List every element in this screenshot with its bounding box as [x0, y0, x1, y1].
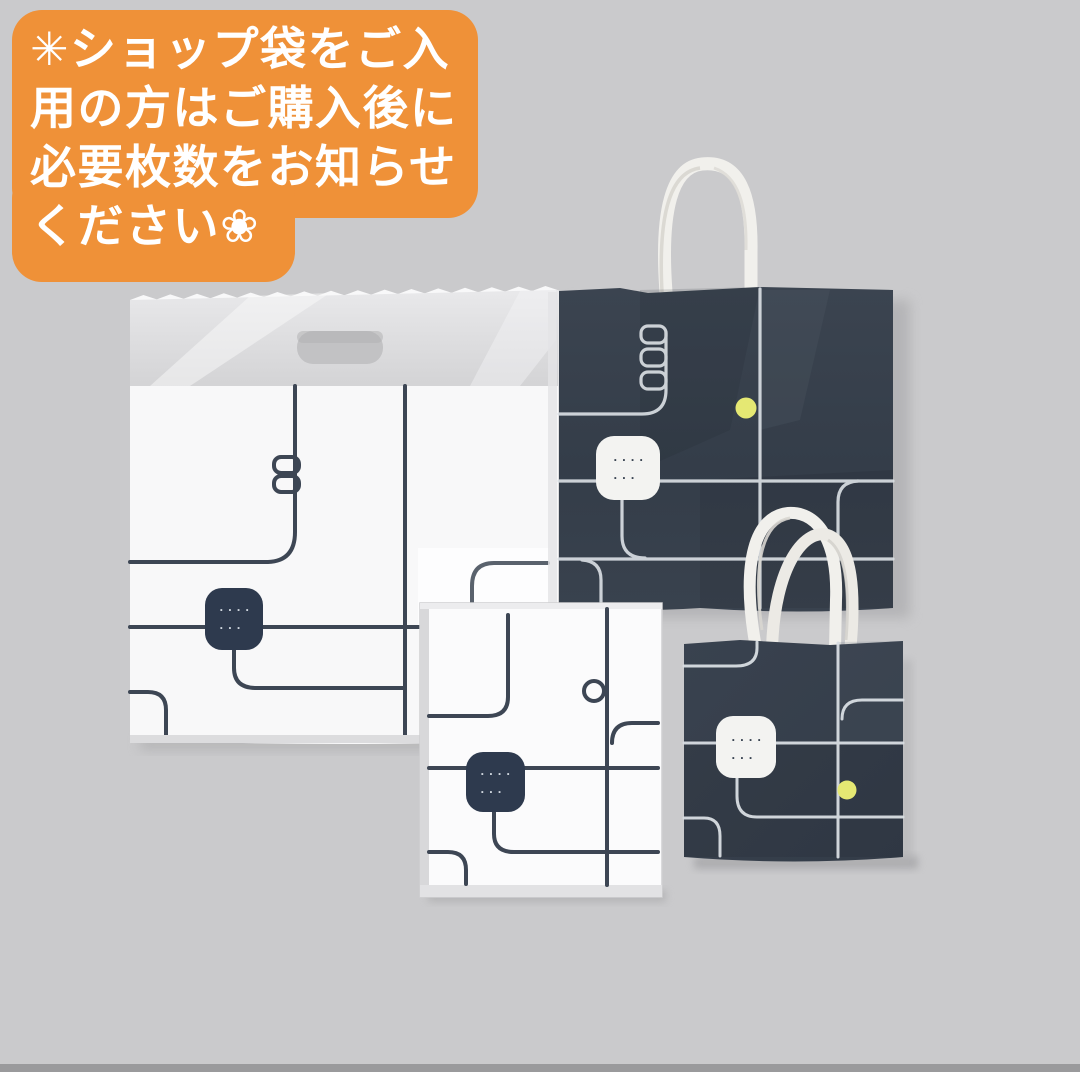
- brand-patch-marks: ····: [612, 454, 647, 467]
- large-paper-bag: ···· ···: [559, 164, 910, 618]
- brand-patch-marks: ···: [218, 622, 244, 635]
- crumple-light: [838, 641, 903, 743]
- photo-bottom-edge: [0, 1064, 1080, 1072]
- handle-cutout-shade: [297, 331, 383, 343]
- brand-patch: [205, 588, 263, 650]
- yellow-dot-sticker: [736, 398, 757, 419]
- brand-patch: [716, 716, 776, 778]
- crumple-shade: [700, 470, 893, 608]
- rope-handle: [661, 164, 751, 292]
- brand-patch-marks: ····: [730, 734, 765, 747]
- bags-scene: ···· ···: [0, 0, 1080, 1072]
- flat-paper-bag: ···· ···: [420, 603, 666, 902]
- yellow-dot-sticker: [838, 781, 857, 800]
- brand-patch: [596, 436, 660, 500]
- brand-patch-marks: ····: [479, 768, 514, 781]
- bag-edge: [420, 885, 662, 897]
- brand-patch-marks: ····: [218, 604, 253, 617]
- brand-patch-marks: ···: [730, 752, 756, 765]
- brand-patch-marks: ···: [479, 786, 505, 799]
- product-photo: ···· ···: [0, 0, 1080, 1072]
- bag-edge: [420, 603, 662, 609]
- brand-patch-marks: ···: [612, 472, 638, 485]
- brand-patch: [466, 752, 525, 812]
